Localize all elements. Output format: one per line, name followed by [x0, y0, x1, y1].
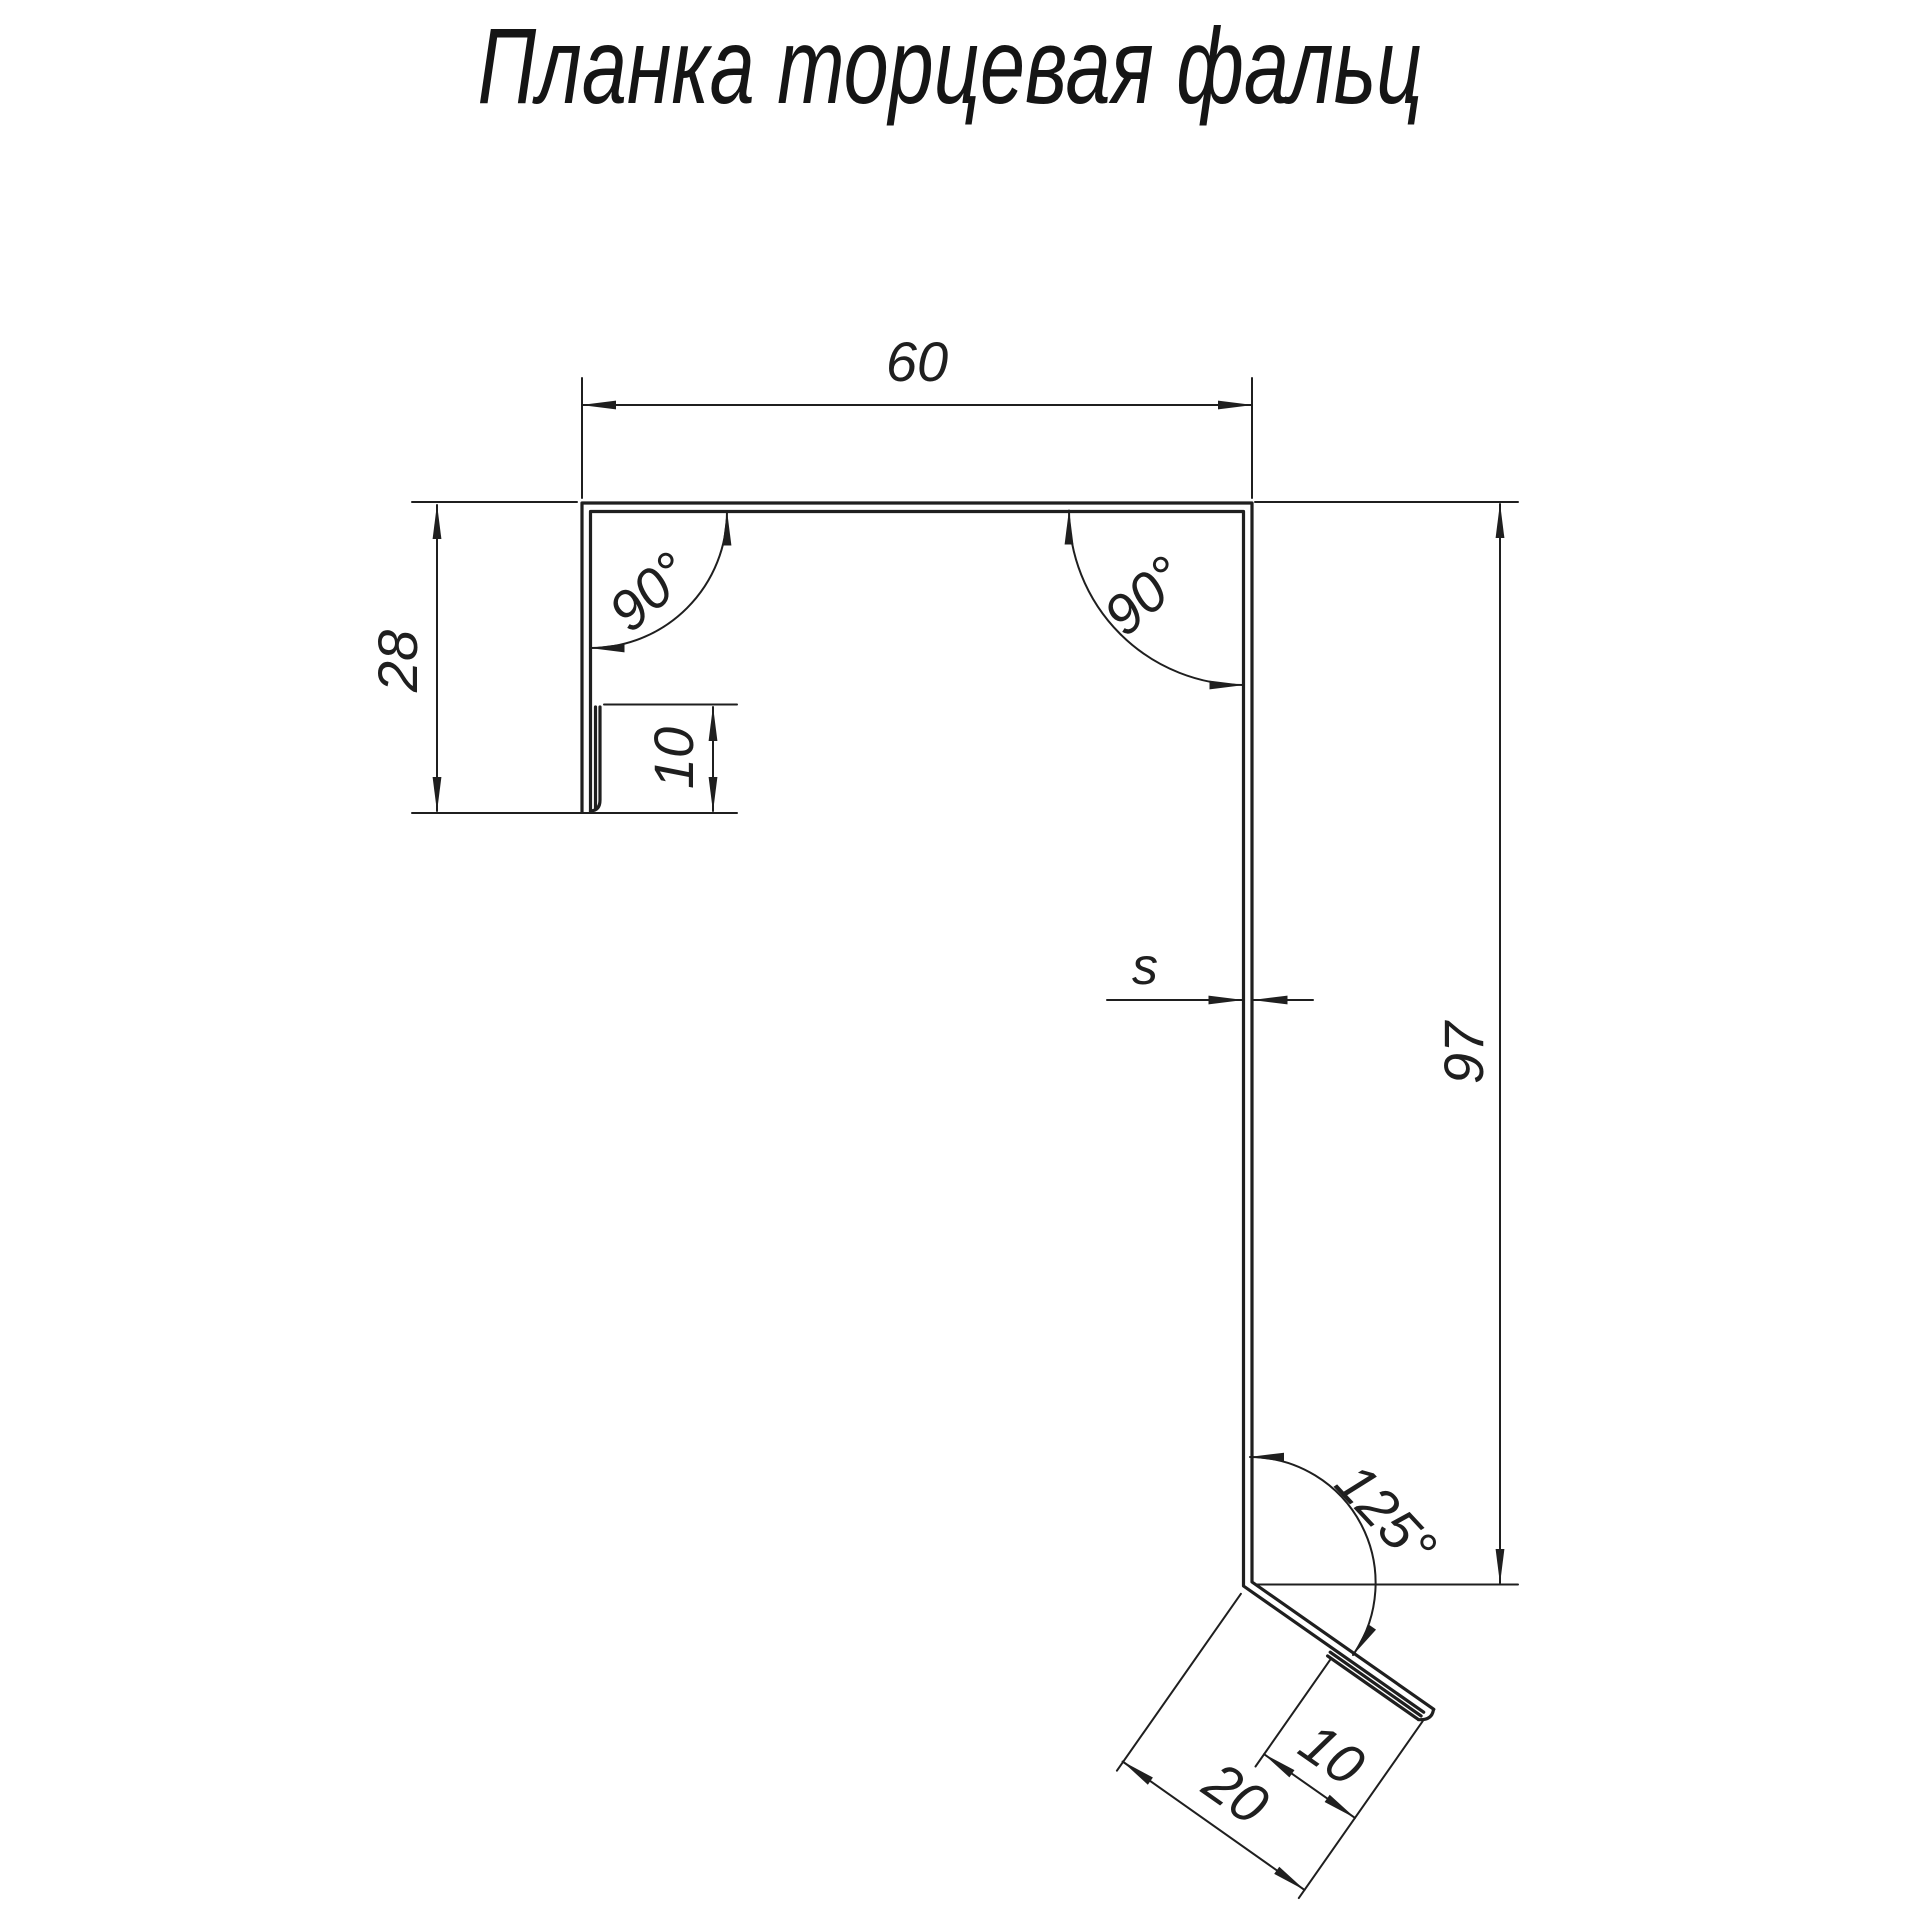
angle-right-90: 90° — [1069, 511, 1244, 686]
dim-bottom-flange-label: 20 — [1192, 1749, 1280, 1837]
profile-outline — [582, 503, 1434, 1720]
angle-bottom-125: 125° — [1250, 1451, 1449, 1655]
dim-right-height: 97 — [1255, 502, 1518, 1585]
profile-inner-surface — [591, 512, 1424, 1713]
dim-left-hem-label: 10 — [642, 727, 705, 789]
angle-right-90-label: 90° — [1091, 544, 1196, 647]
angle-bottom-125-label: 125° — [1324, 1451, 1449, 1579]
dim-right-height-label: 97 — [1432, 1020, 1495, 1084]
angle-left-90: 90° — [591, 512, 728, 649]
dim-left-height-label: 28 — [366, 630, 429, 693]
dim-bottom-hem-label: 10 — [1289, 1710, 1376, 1797]
angle-left-90-label: 90° — [596, 540, 701, 643]
technical-drawing: Планка торцевая фальц 60 28 10 90° 90° — [0, 0, 1907, 1920]
dim-sheet-thickness-label: s — [1132, 938, 1158, 996]
dim-left-hem: 10 — [604, 705, 737, 812]
drawing-page: Планка торцевая фальц 60 28 10 90° 90° — [0, 0, 1907, 1920]
dim-top-width: 60 — [582, 330, 1252, 498]
dim-sheet-thickness: s — [1107, 938, 1313, 1000]
dim-bottom-flange: 20 — [1117, 1594, 1305, 1890]
page-title: Планка торцевая фальц — [478, 5, 1423, 126]
profile-outer-surface — [582, 503, 1434, 1709]
dim-top-width-label: 60 — [886, 330, 948, 393]
